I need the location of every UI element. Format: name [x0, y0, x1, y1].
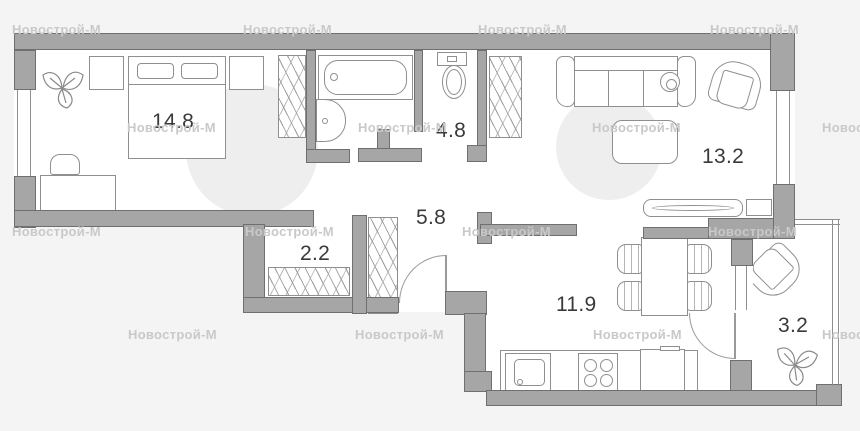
wall-bath-bottom-right	[358, 148, 422, 162]
burner	[600, 359, 613, 372]
burner	[600, 374, 613, 387]
window-pane-line	[17, 90, 18, 176]
watermark-text: Новострой-М	[462, 224, 551, 239]
pillow	[181, 63, 218, 79]
nightstand	[229, 56, 264, 90]
tv	[652, 205, 734, 211]
sofa-seat-divider	[608, 70, 609, 107]
bathtub-drain	[330, 73, 338, 81]
closet-rod	[268, 267, 350, 296]
toilet-bowl	[442, 65, 466, 99]
bed	[128, 56, 226, 159]
wardrobe	[278, 55, 306, 138]
chair	[617, 244, 642, 274]
wardrobe	[489, 56, 522, 138]
wall-kitchen-north-b	[643, 227, 709, 239]
wall-bath-bottom-left	[306, 149, 350, 163]
kitchen-sink-unit	[505, 353, 551, 391]
sofa-decor-inner	[666, 79, 677, 90]
wall-bottom	[486, 390, 823, 406]
sofa-seat-divider	[643, 70, 644, 107]
window-pane-line	[30, 90, 31, 176]
cabinet	[746, 199, 772, 216]
watermark-text: Новострой-М	[12, 22, 101, 37]
wall-bedroom-bath	[306, 50, 316, 163]
wall-top	[14, 33, 795, 50]
room-label-kitchen: 11.9	[556, 293, 597, 317]
watermark-text: Новострой-М	[592, 120, 681, 135]
sofa	[556, 56, 696, 107]
watermark-text: Новострой-М	[243, 22, 332, 37]
wall-balcony-door-stub	[731, 239, 753, 266]
wall-closet-bottom	[243, 297, 399, 313]
watermark-text: Новострой-М	[708, 224, 797, 239]
stool	[50, 154, 80, 175]
toilet-flush-button	[447, 56, 457, 62]
wall-toilet-foot	[467, 145, 487, 162]
nightstand	[89, 56, 124, 90]
watermark-text: Новострой-М	[593, 327, 682, 342]
watermark-text: Новострой-М	[355, 327, 444, 342]
stove	[578, 353, 618, 391]
wall-kitchen-left-step	[464, 371, 492, 392]
wall-kitchen-left	[464, 313, 486, 373]
room-label-hallway: 5.8	[416, 206, 446, 230]
kitchen-sink-drain	[517, 379, 523, 385]
room-label-balcony: 3.2	[778, 314, 808, 338]
pillow	[137, 63, 174, 79]
balcony-glazing-right	[838, 219, 839, 386]
balcony-glazing-right	[832, 219, 833, 386]
burner	[584, 374, 597, 387]
watermark-text: Новострой-М	[128, 327, 217, 342]
watermark-text: Новострой-М	[710, 22, 799, 37]
plant-icon	[40, 63, 85, 109]
plant-icon	[773, 340, 818, 386]
sink-drain	[322, 118, 328, 124]
window-pane-line	[735, 266, 736, 310]
balcony-door-leaf	[734, 313, 736, 359]
bathtub	[318, 55, 413, 100]
watermark-text: Новострой-М	[358, 120, 447, 135]
desk	[40, 175, 116, 213]
burner	[584, 359, 597, 372]
watermark-text: Новострой-М	[822, 327, 860, 342]
toilet-bowl-inner	[446, 69, 462, 95]
wall-top-right-corner	[770, 33, 795, 91]
wall-toilet-living	[477, 50, 487, 150]
sofa-back	[574, 56, 678, 71]
watermark-text: Новострой-М	[12, 224, 101, 239]
wall-balcony-corner	[816, 384, 842, 406]
fridge	[640, 349, 685, 392]
wall-entrance	[445, 291, 487, 315]
floor-plan: 14.8 4.8 13.2 5.8 2.2 11.9 3.2 Новострой…	[0, 0, 860, 431]
window-pane-line	[746, 266, 747, 310]
wall-left-upper	[14, 50, 36, 90]
sofa-armrest	[556, 56, 575, 107]
wall-closet-divider	[352, 215, 367, 314]
dining-table	[641, 237, 688, 316]
chair	[687, 244, 712, 274]
watermark-text: Новострой-М	[478, 22, 567, 37]
fridge-handle	[660, 346, 680, 351]
room-label-living: 13.2	[702, 145, 744, 169]
window-pane-line	[776, 91, 777, 184]
watermark-text: Новострой-М	[127, 120, 216, 135]
watermark-text: Новострой-М	[822, 120, 860, 135]
tv-stand	[643, 199, 743, 217]
toilet-tank	[437, 52, 467, 66]
room-label-closet: 2.2	[300, 242, 330, 266]
window-pane-line	[789, 91, 790, 184]
bed-blanket-line	[129, 84, 225, 85]
chair	[617, 281, 642, 311]
watermark-text: Новострой-М	[245, 224, 334, 239]
chair	[687, 281, 712, 311]
